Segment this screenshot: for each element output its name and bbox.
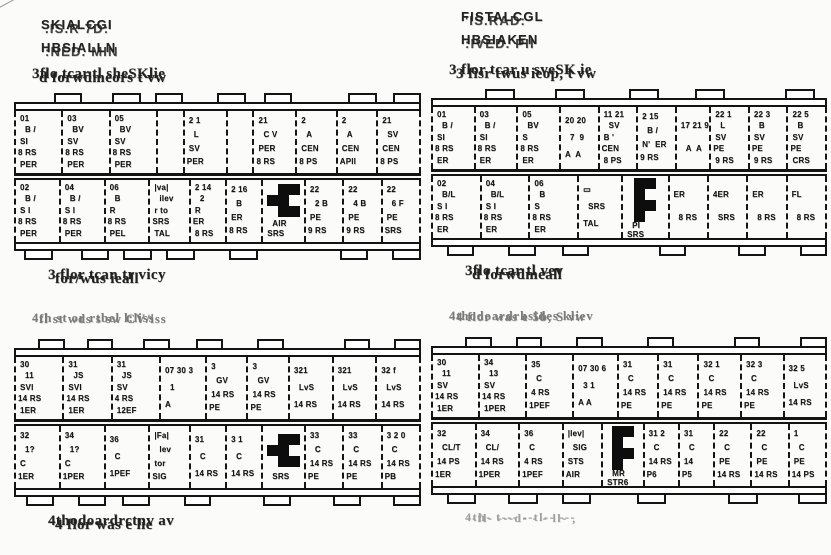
tab-notch [637, 495, 666, 504]
cell-label: ▭ [579, 186, 621, 195]
cell-label: 31 [680, 430, 713, 439]
tab-notch [184, 497, 212, 506]
tab-notch [800, 337, 827, 346]
cell-label: 8 RS [16, 218, 59, 227]
cell-label: 9 RS [750, 157, 787, 166]
grid-cell: 06BS8 RSER [528, 176, 577, 238]
tab-notch [555, 89, 585, 98]
cell-label: 8 RS [476, 145, 517, 154]
grid-cell: 22CPE14 RS [750, 424, 787, 486]
figure-bottom-left: 4th st or rtbel l:liss fl st wds s sw CV… [14, 312, 421, 533]
grid-cell: 32 5LvS14 RS [783, 355, 826, 417]
cell-label: 22 [306, 186, 342, 195]
cell-label: 1 [161, 384, 205, 393]
cell-label: 14 RS [715, 471, 750, 480]
grid-cell: 3 2 0C14 RSPB [381, 426, 419, 488]
grid-bottom-bar [431, 238, 827, 247]
grid-cell: 222 BPE9 RS [304, 180, 342, 242]
grid-row: 02B /S I8 RSPER04B /S I8 RSPER06BR8 RSPE… [14, 180, 421, 242]
cell-label: 14 RS [290, 401, 332, 410]
caption-line-ghost: for/wus ieall [55, 271, 421, 287]
grid-cell: |Fa|levtorSIG [148, 426, 189, 488]
cell-label: 14 RS [433, 393, 478, 402]
cell-label: C [61, 460, 104, 469]
cell-label: SV [63, 138, 108, 147]
cell-label: 7 9 [561, 134, 598, 143]
grid-cell: 17 21 9A A [675, 107, 710, 169]
cell-label: A [297, 131, 336, 140]
grid-cell: 07 30 63 1A A [572, 355, 617, 417]
grid-cell: 21SVCEN8 PS [376, 111, 419, 173]
cell-label: S I [16, 207, 59, 216]
grid-row: 3011SV14 RS1ER3413SV14 RS1PER35C4 RS1PEF… [431, 355, 827, 417]
tab-notch [447, 247, 474, 256]
cell-label: SV [480, 382, 525, 391]
cell-label: 3 1 [574, 382, 617, 391]
cell-label: PE [742, 402, 783, 411]
tab-notch [629, 89, 659, 98]
cell-label: 4ER [709, 191, 746, 200]
cell-label: 20 20 [561, 117, 598, 126]
cell-label: 4 RS [520, 458, 562, 467]
right-header-block: FISTALCGL 'IS.RAD: HBSIAKEN :IVED. PII [461, 10, 544, 56]
cell-label: 22 5 [788, 111, 825, 120]
caption-line-ghost: 4 flor was e lie [55, 517, 421, 533]
cell-label: 32 [433, 430, 475, 439]
grid-cell: FL8 RS [786, 176, 825, 238]
tab-notch [485, 89, 515, 98]
cell-label: 8 RS [788, 214, 825, 223]
cell-label: C V [254, 131, 295, 140]
cell-label: 31 [113, 361, 159, 370]
cell-label: 31 [64, 361, 110, 370]
cell-label: C [715, 444, 750, 453]
figure-caption-above: 3 flor tcar u sveSK ie 3 fisr twus ieop,… [449, 62, 827, 86]
cell-label: 21 [378, 117, 419, 126]
tab-notch [576, 337, 603, 346]
grid-cell: 01B /SI8 RSER [431, 107, 474, 169]
cell-label: 9 RS [344, 227, 380, 236]
grid-cell: |lev|SIGSTSAIR [562, 424, 601, 486]
grid-cell: 2 1LSVPER [183, 111, 226, 173]
grid-cell: 31C14 RSPE [657, 355, 697, 417]
cell-label: 22 [383, 186, 419, 195]
grid-bottom-bar [14, 488, 421, 497]
grid-cell: 32 3C14 RSPE [740, 355, 783, 417]
cell-label: 9 RS [306, 227, 342, 236]
cell-label: 1ER [64, 407, 110, 416]
caption-line-ghost: 3 fisr twus ieop, t vw [456, 66, 827, 82]
grid-cell: 20 207 9A A [559, 107, 598, 169]
tab-notch [393, 497, 421, 506]
cell-label: 2 B [306, 200, 342, 209]
caption-line-ghost: fl st wds s sw CV/iss [39, 313, 421, 326]
cell-label: 02 [433, 180, 480, 189]
tab-notch [122, 497, 150, 506]
cell-label: PE [306, 214, 342, 223]
grid-row: 02B/LS I8 RSER04B/LS I8 RSER06BS8 RSER▭S… [431, 176, 827, 238]
grid-cell: 341?C1PER [59, 426, 104, 488]
cell-label: PE [344, 214, 380, 223]
grid-cell: PISRS [621, 176, 667, 238]
cell-label: CL/T [433, 444, 475, 453]
cell-label: 8 RS [61, 218, 104, 227]
cell-label: 35 [527, 361, 572, 370]
tab-notch [340, 251, 369, 260]
cell-label: 14 RS [207, 391, 246, 400]
figure-caption-below: 3flo tcar tl vev d forwdmeall [465, 263, 827, 283]
grid-cell: 34CL/14 RS1PER [475, 424, 519, 486]
cell-label: 9 RS [638, 154, 675, 163]
grid-row: 321?C1ER341?C1PER36C1PEF|Fa|levtorSIG31C… [14, 426, 421, 488]
cell-label: 2 16 [227, 186, 261, 195]
cell-label: SV [378, 131, 419, 140]
cell-label: SV [750, 134, 787, 143]
grid-cell: 2ACENAPIl [336, 111, 377, 173]
cell-label: 1PEF [520, 471, 562, 480]
cell-label: PER [61, 230, 104, 239]
grid-cell: 3011SVI14 RS1ER [14, 357, 62, 419]
grid-cell: 22 3BSVPE9 RS [748, 107, 787, 169]
cell-label: PE [344, 473, 380, 482]
cell-label: 2 15 [638, 113, 675, 122]
figure-caption-above: 4th st or rtbel l:liss fl st wds s sw CV… [32, 312, 421, 336]
cell-label: B [750, 122, 787, 131]
cell-label: 14 RS [16, 395, 62, 404]
cell-label: 36 [106, 436, 149, 445]
tab-notch [78, 497, 106, 506]
cell-label: PER [16, 230, 59, 239]
grid-cell: MRSTR6 [601, 424, 642, 486]
cell-label: 3 2 0 [383, 432, 419, 441]
tab-notch-row [14, 251, 421, 260]
cell-label: B [788, 122, 825, 131]
cell-label: SI [476, 134, 517, 143]
grid-cell: 3GV14 RSPE [246, 357, 287, 419]
left-header-block: SKIALCGI .IS.R 7D: HBSIALLN :NED. MIN [41, 18, 119, 64]
cell-label: 07 30 3 [161, 367, 205, 376]
cell-label: B/L [482, 191, 529, 200]
cell-label: 32 3 [742, 361, 783, 370]
grid-top-bar [431, 346, 827, 355]
cell-label: 8 RS [106, 218, 149, 227]
cell-label: PE [383, 214, 419, 223]
cell-label: 31 [619, 361, 657, 370]
grid-cell: 06BR8 RSPEL [104, 180, 149, 242]
figure-caption-below: 3 flor tcan tr vicy for/wus ieall [48, 267, 421, 287]
tab-notch [800, 247, 827, 256]
tab-notch [659, 247, 686, 256]
cell-label: 8 RS [530, 214, 577, 223]
grid-row: 32CL/T14 PS1ER34CL/14 RS1PER36C4 RS1PEF|… [431, 424, 827, 486]
cell-label: 14 RS [480, 393, 525, 402]
cell-label: 321 [290, 367, 332, 376]
grid-cell [156, 111, 183, 173]
cell-label: ER [433, 157, 474, 166]
cell-label: C [527, 375, 572, 384]
cell-label: 8 RS [670, 214, 707, 223]
cell-label: ER [748, 191, 785, 200]
cell-label: S [530, 203, 577, 212]
grid-cell: 22 5BSVPECRS [786, 107, 825, 169]
black-marker-blob [612, 426, 634, 470]
tab-notch-row [14, 339, 421, 348]
tab-notch [123, 251, 152, 260]
cell-label: 14 RS [306, 460, 342, 469]
black-marker-blob [634, 178, 656, 222]
tab-notch [393, 93, 421, 102]
tab-notch [562, 495, 591, 504]
cell-label: C [227, 453, 261, 462]
cell-label: SI [16, 138, 61, 147]
grid-cell: 36C4 RS1PEF [518, 424, 562, 486]
cell-label: 14 RS [785, 399, 826, 408]
cell-label: SV [711, 134, 748, 143]
cell-label: 36 [520, 430, 562, 439]
cell-label: SV [433, 382, 478, 391]
cell-label: 1PER [480, 405, 525, 414]
cell-label: A A [561, 151, 598, 160]
cell-label: PE [699, 402, 740, 411]
cell-label: GV [248, 377, 287, 386]
grid-cell: 36C1PEF [104, 426, 149, 488]
cell-label: N' ER [638, 141, 675, 150]
grid-cell: 31JSSVI14 RS1ER [62, 357, 110, 419]
caption-line-ghost: 4 flor was e 5b, S vw [456, 311, 827, 324]
tab-notch [229, 251, 258, 260]
cell-label: 14 RS [699, 389, 740, 398]
cell-label: SRS [623, 231, 667, 239]
cell-label: 1ER [16, 407, 62, 416]
tab-notch [348, 93, 376, 102]
cell-label: PE [619, 402, 657, 411]
cell-label: 14 RS [344, 460, 380, 469]
tab-notch [54, 93, 82, 102]
cell-label: B / [16, 195, 59, 204]
tab-notch [695, 89, 725, 98]
cell-label: 4 B [344, 200, 380, 209]
grid-cell: 35C4 RS1PEF [525, 355, 572, 417]
cell-label: CRS [788, 157, 825, 166]
grid-cell: 32 1C14 RSPE [697, 355, 740, 417]
cell-label: 14 RS [659, 389, 697, 398]
cell-label: STR6 [603, 479, 642, 487]
cell-label: 6 F [383, 200, 419, 209]
grid-cell: 2 142RER8 RS [189, 180, 225, 242]
caption-line-ghost: d forwdmeors t vw [39, 70, 421, 86]
cell-label: 1 [790, 430, 825, 439]
cell-label: ER [530, 226, 577, 235]
cell-label: |va| [150, 184, 189, 193]
cell-label: CEN [378, 145, 419, 154]
cell-label: 3 [248, 363, 287, 372]
cell-label: 01 [16, 115, 61, 124]
grid-top-bar [14, 348, 421, 357]
grid-cell: 3 1C14 RS [225, 426, 261, 488]
cell-label: C [383, 446, 419, 455]
grid-cell: AIRSRS [261, 180, 304, 242]
tab-notch [87, 339, 114, 348]
figure-caption-below: 4thodoardrctnv av 4 flor was e lie [48, 513, 421, 533]
cell-label: SIG [150, 473, 189, 482]
tab-notch [394, 339, 421, 348]
cell-label: SIG [564, 444, 601, 453]
cell-label: 05 [111, 115, 156, 124]
grid-cell: 31 2C14 RSP6 [643, 424, 678, 486]
grid-cell: 31C14 RSPE [617, 355, 657, 417]
cell-label: C [191, 453, 225, 462]
cell-label: C [659, 375, 697, 384]
cell-label: PB [383, 473, 419, 482]
cell-label: 1PEF [106, 470, 149, 479]
grid-cell: 05BVS8 RSER [516, 107, 559, 169]
header-line-ghost: :NED. MIN [41, 45, 119, 58]
cell-label: S [518, 134, 559, 143]
grid-cell: 04B /S I8 RSPER [59, 180, 104, 242]
grid-cell: 321LvS14 RS [332, 357, 376, 419]
cell-label: PE [659, 402, 697, 411]
cell-label: PER [16, 161, 61, 170]
tab-notch [465, 337, 492, 346]
cell-label: GV [207, 377, 246, 386]
cell-label: C [520, 444, 562, 453]
cell-label: 9 RS [711, 157, 748, 166]
tab-notch [738, 247, 765, 256]
tab-notch-row [14, 93, 421, 102]
cell-label: AIR [263, 220, 304, 229]
cell-label: SRS [709, 214, 746, 223]
cell-label: 8 RS [227, 227, 261, 236]
scanned-document-page: SKIALCGI .IS.R 7D: HBSIALLN :NED. MIN 3f… [0, 0, 831, 555]
cell-label: FL [788, 191, 825, 200]
cell-label: B / [433, 122, 474, 131]
cell-label: ER [476, 157, 517, 166]
cell-label: 31 2 [645, 430, 678, 439]
cell-label: 1PER [61, 473, 104, 482]
grid-cell: 321LvS14 RS [288, 357, 332, 419]
grid-cell: SRS [261, 426, 304, 488]
header-line-ghost: :IVED. PII [461, 37, 544, 50]
cell-label: AIR [564, 471, 601, 480]
cell-label: 2 [297, 117, 336, 126]
cell-label: 11 [433, 370, 478, 379]
cell-label: SV [113, 384, 159, 393]
grid-cell: 31C14 RS [189, 426, 225, 488]
left-column: SKIALCGI .IS.R 7D: HBSIALLN :NED. MIN 3f… [14, 0, 421, 555]
grid-bottom-bar [431, 486, 827, 495]
cell-label: B / [476, 122, 517, 131]
grid-cell: 226 FPESRS [381, 180, 419, 242]
cell-label: 34 [61, 432, 104, 441]
grid-cell: 224 BPE9 RS [342, 180, 380, 242]
grid-cell: 1CPE14 PS [788, 424, 825, 486]
grid-cell: |va|ilevr toSRSTAL [148, 180, 189, 242]
cell-label: C [306, 446, 342, 455]
cell-label: 14 RS [645, 458, 678, 467]
cell-label: 2 [191, 195, 225, 204]
cell-label: C [16, 460, 59, 469]
cell-label: 21 [254, 117, 295, 126]
cell-label: 8 RS [482, 214, 529, 223]
cell-label: C [645, 444, 678, 453]
cell-label: 8 RS [518, 145, 559, 154]
cell-label: PE [715, 458, 750, 467]
cell-label: 07 30 6 [574, 365, 617, 374]
cell-label: tor [150, 460, 189, 469]
cell-label: SI [433, 134, 474, 143]
cell-label: B [106, 195, 149, 204]
cell-label: SV [185, 145, 226, 154]
cell-label: 32 1 [699, 361, 740, 370]
cell-label: 14 [680, 458, 713, 467]
grid-cell: 04B/LS I8 RSER [480, 176, 529, 238]
cell-label: BV [111, 126, 156, 135]
cell-label: 14 RS [383, 460, 419, 469]
cell-label: 1PER [477, 471, 519, 480]
cell-label: B [227, 200, 261, 209]
cell-label: B/L [433, 191, 480, 200]
cell-label: 14 RS [227, 470, 261, 479]
cell-label: 14 RS [334, 401, 376, 410]
grid-cell: 07 30 31A [159, 357, 205, 419]
tab-notch-row [431, 89, 827, 98]
cell-label: 22 3 [750, 111, 787, 120]
cell-label: SV [600, 122, 637, 131]
cell-label: 01 [433, 111, 474, 120]
cell-label: S I [433, 203, 480, 212]
tab-notch [508, 247, 535, 256]
cell-label: 02 [16, 184, 59, 193]
cell-label: 14 RS [64, 395, 110, 404]
cell-label: B / [638, 127, 675, 136]
grid-cell: 2ACEN8 PS [295, 111, 336, 173]
tab-notch [166, 251, 195, 260]
grid-cell: 2 15B /N' ER9 RS [636, 107, 675, 169]
cell-label: 03 [63, 115, 108, 124]
grid-mid-bar [431, 417, 827, 424]
grid-row: 01B /SI8 RSER03B /SI8 RSER05BVS8 RSER20 … [431, 107, 827, 169]
cell-label: CEN [297, 145, 336, 154]
cell-label: 14 RS [377, 401, 419, 410]
cell-label: L [711, 122, 748, 131]
cell-label: PE [306, 473, 342, 482]
cell-label: 4 RS [113, 395, 159, 404]
grid-cell: 22CPE14 RS [713, 424, 750, 486]
cell-label: 33 [306, 432, 342, 441]
cell-label: PER [63, 161, 108, 170]
cell-label: P5 [680, 471, 713, 480]
cell-label: 14 RS [742, 389, 783, 398]
cell-label: r to [150, 207, 189, 216]
tab-notch [263, 497, 291, 506]
cell-label: PE [711, 145, 748, 154]
cell-label: B / [61, 195, 104, 204]
figure-caption-above: 4thodoardrhsides kliev 4 flor was e 5b, … [449, 310, 827, 334]
cell-label: TAL [150, 230, 189, 239]
grid-top-bar [14, 102, 421, 111]
cell-label: LvS [785, 382, 826, 391]
tab-notch [196, 339, 223, 348]
cell-label: 14 RS [619, 389, 657, 398]
cell-label: ER [670, 191, 707, 200]
grid-cell: ▭SRSTAL [577, 176, 621, 238]
cell-label: PER [111, 161, 156, 170]
cell-label: 04 [61, 184, 104, 193]
tab-notch [647, 337, 674, 346]
cell-label: 32 f [377, 367, 419, 376]
grid-cell: 31C14P5 [678, 424, 713, 486]
cell-label: PER [254, 145, 295, 154]
